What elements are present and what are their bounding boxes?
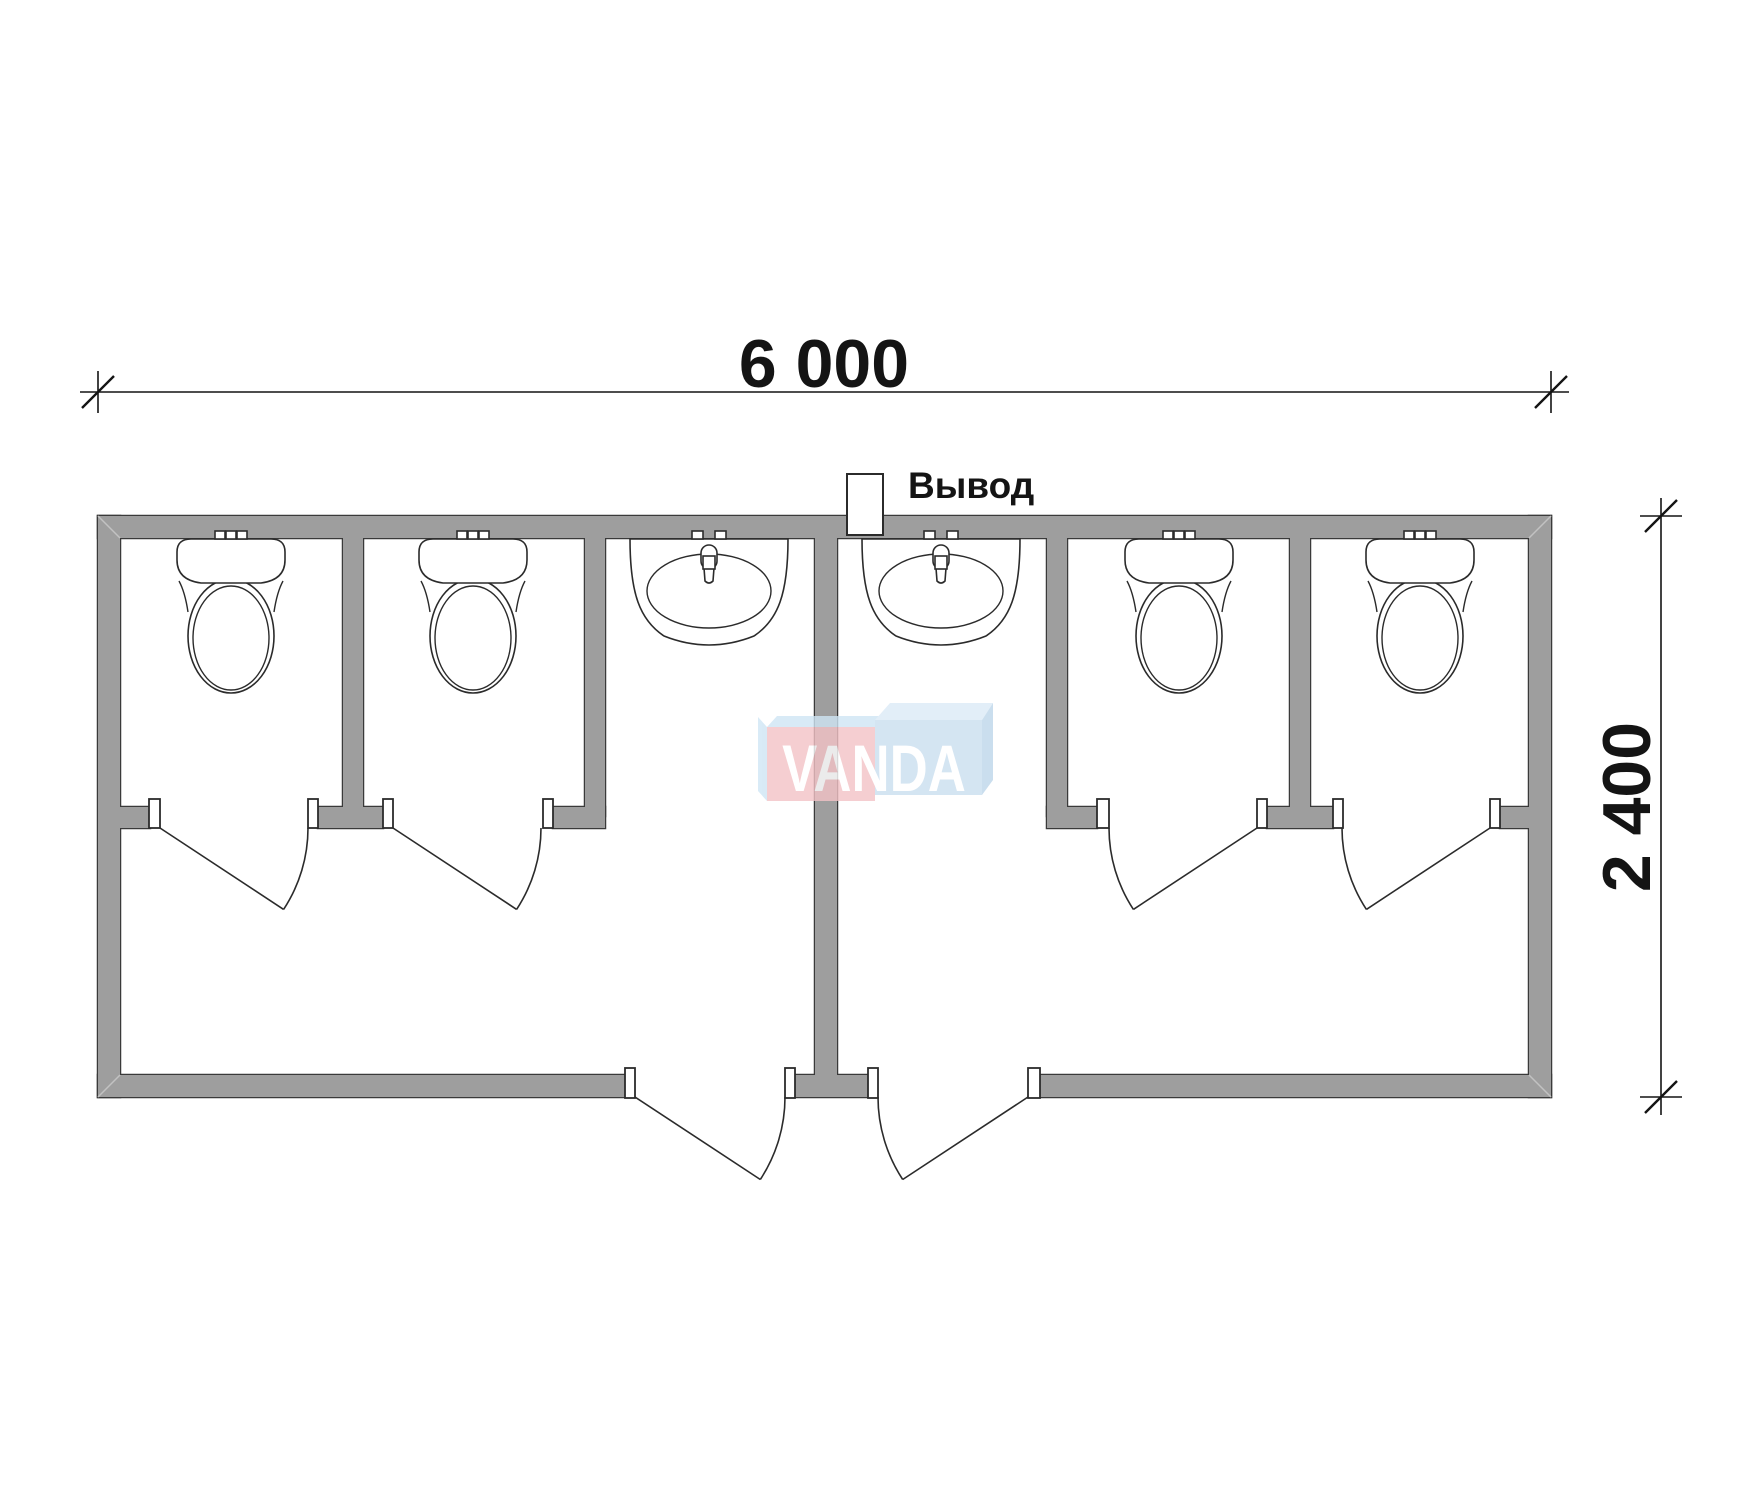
dimension-width: 6 000 — [80, 326, 1569, 413]
door-stall1 — [160, 828, 308, 909]
logo-text: VANDA — [782, 731, 966, 805]
jamb-stall3-right — [1257, 799, 1267, 828]
toilet-stall2 — [419, 531, 527, 693]
door-stall3 — [1109, 828, 1257, 909]
sink-left — [630, 531, 788, 645]
dimension-height: 2 400 — [1589, 498, 1682, 1115]
door-entrance-right — [878, 1097, 1028, 1180]
sink-right — [862, 531, 1020, 645]
vanda-watermark-logo: VANDA — [758, 703, 993, 805]
jamb-stall1-left — [149, 799, 160, 828]
outlet-label: Вывод — [908, 465, 1034, 506]
jamb-stall3-left — [1097, 799, 1109, 828]
floor-plan-page: Вывод 6 000 2 400 VANDA — [0, 0, 1763, 1503]
jamb-stall1-right — [308, 799, 318, 828]
jamb-stall4-left — [1333, 799, 1343, 828]
jamb-entrance1-left — [625, 1068, 635, 1098]
width-dimension-text: 6 000 — [739, 326, 909, 402]
logo-left-bevel — [758, 717, 767, 801]
jamb-stall4-right — [1490, 799, 1500, 828]
height-dimension-text: 2 400 — [1589, 722, 1665, 892]
door-stall4 — [1342, 828, 1490, 909]
jamb-entrance1-right — [785, 1068, 795, 1098]
jamb-entrance2-right — [1028, 1068, 1040, 1098]
jamb-stall2-left — [383, 799, 393, 828]
toilet-stall1 — [177, 531, 285, 693]
toilet-stall4 — [1366, 531, 1474, 693]
jamb-entrance2-left — [868, 1068, 878, 1098]
door-stall2 — [393, 828, 541, 909]
logo-blue-top-bevel — [875, 703, 993, 720]
floor-plan-drawing: Вывод 6 000 2 400 VANDA — [0, 0, 1763, 1503]
toilet-stall3 — [1125, 531, 1233, 693]
jamb-stall2-right — [543, 799, 553, 828]
logo-pink-top-bevel — [767, 716, 885, 727]
door-entrance-left — [635, 1097, 785, 1180]
outlet-box — [847, 474, 883, 535]
